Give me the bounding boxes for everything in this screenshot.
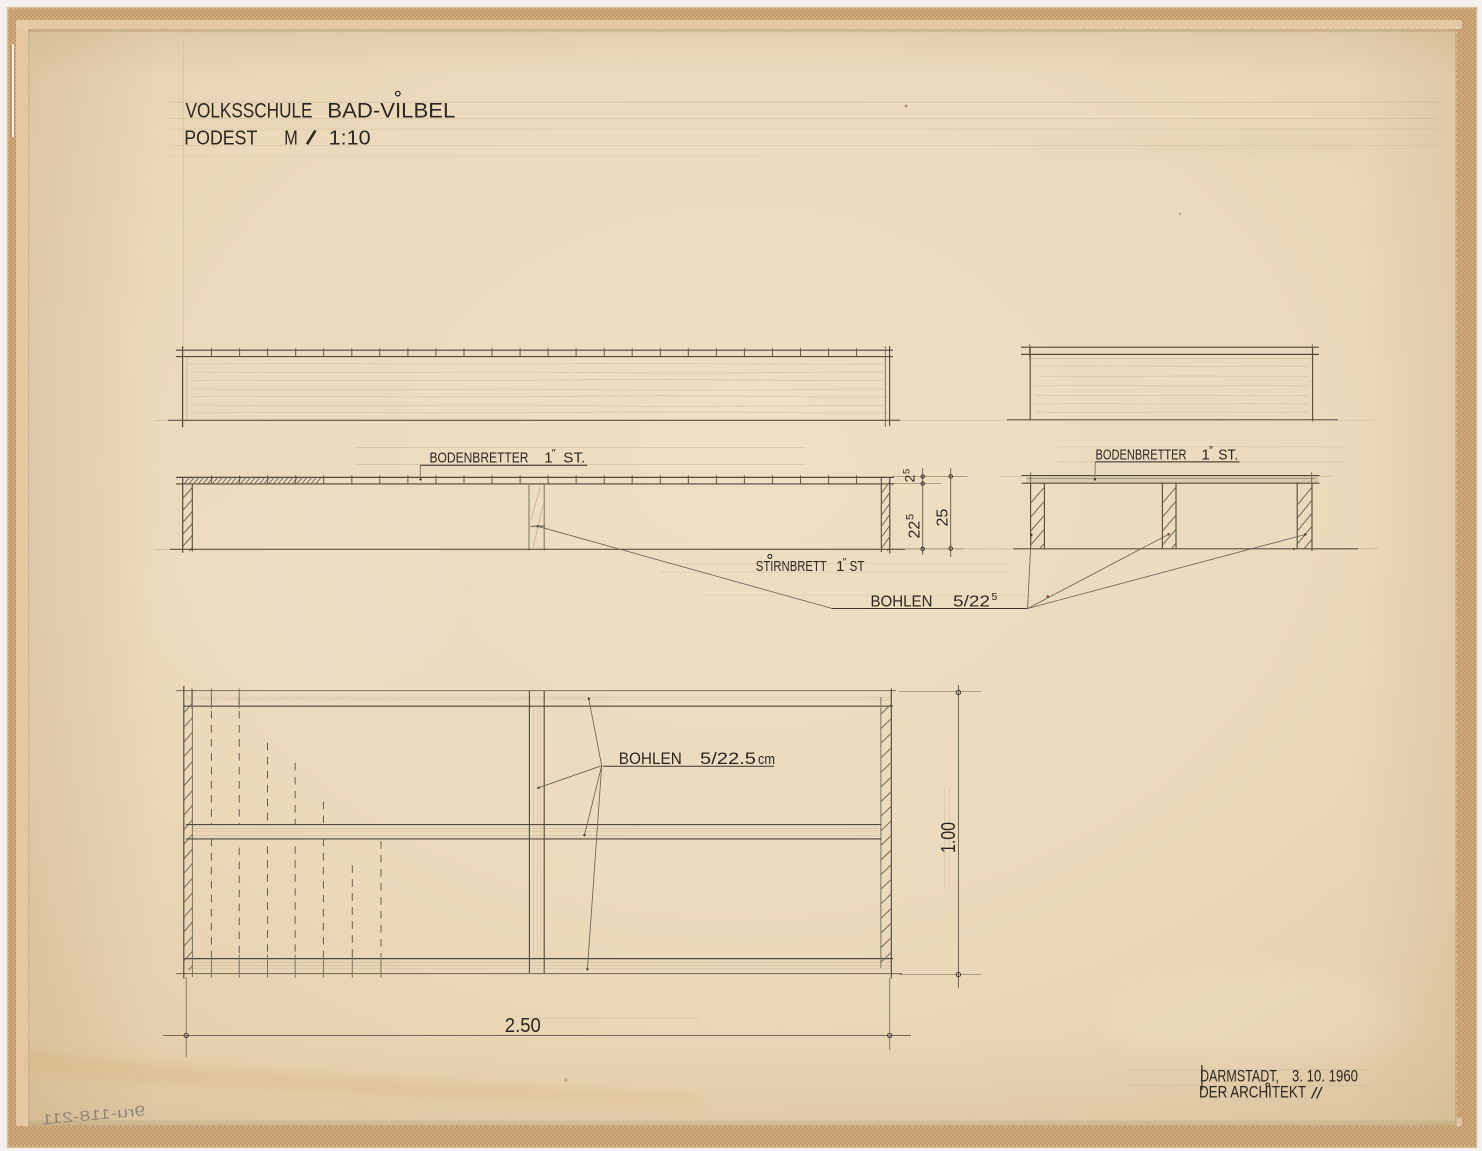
svg-text:BOHLEN: BOHLEN	[871, 593, 933, 610]
svg-text:2.50: 2.50	[505, 1015, 541, 1037]
svg-text:5: 5	[992, 591, 998, 603]
svg-text:ST: ST	[850, 558, 865, 575]
svg-text:22: 22	[907, 521, 924, 539]
svg-text:BODENBRETTER: BODENBRETTER	[1096, 447, 1187, 464]
svg-text:5/22.5: 5/22.5	[700, 750, 756, 768]
svg-text:1:10: 1:10	[329, 128, 371, 150]
svg-text:5: 5	[902, 469, 913, 474]
svg-text:BODENBRETTER: BODENBRETTER	[430, 449, 529, 466]
svg-text:25: 25	[935, 509, 952, 527]
svg-text:ST.: ST.	[1218, 447, 1238, 464]
svg-text:STIRNBRETT: STIRNBRETT	[756, 558, 827, 575]
svg-text:DER ARCHITEKT: DER ARCHITEKT	[1199, 1083, 1306, 1102]
svg-text:M: M	[284, 128, 298, 150]
svg-text:cm: cm	[758, 751, 775, 768]
svg-text:″: ″	[552, 448, 556, 460]
svg-text:″: ″	[1209, 445, 1213, 457]
svg-text:ST.: ST.	[563, 449, 585, 466]
svg-text:5/22: 5/22	[953, 593, 990, 610]
svg-text:5: 5	[905, 514, 917, 520]
svg-text:1.00: 1.00	[938, 822, 960, 853]
svg-text:2: 2	[902, 475, 918, 483]
svg-text:BOHLEN: BOHLEN	[619, 750, 682, 768]
svg-text:BAD-VILBEL: BAD-VILBEL	[327, 100, 455, 123]
svg-text:VOLKSSCHULE: VOLKSSCHULE	[186, 100, 313, 123]
svg-text:PODEST: PODEST	[184, 128, 257, 150]
svg-text:″: ″	[843, 556, 847, 568]
